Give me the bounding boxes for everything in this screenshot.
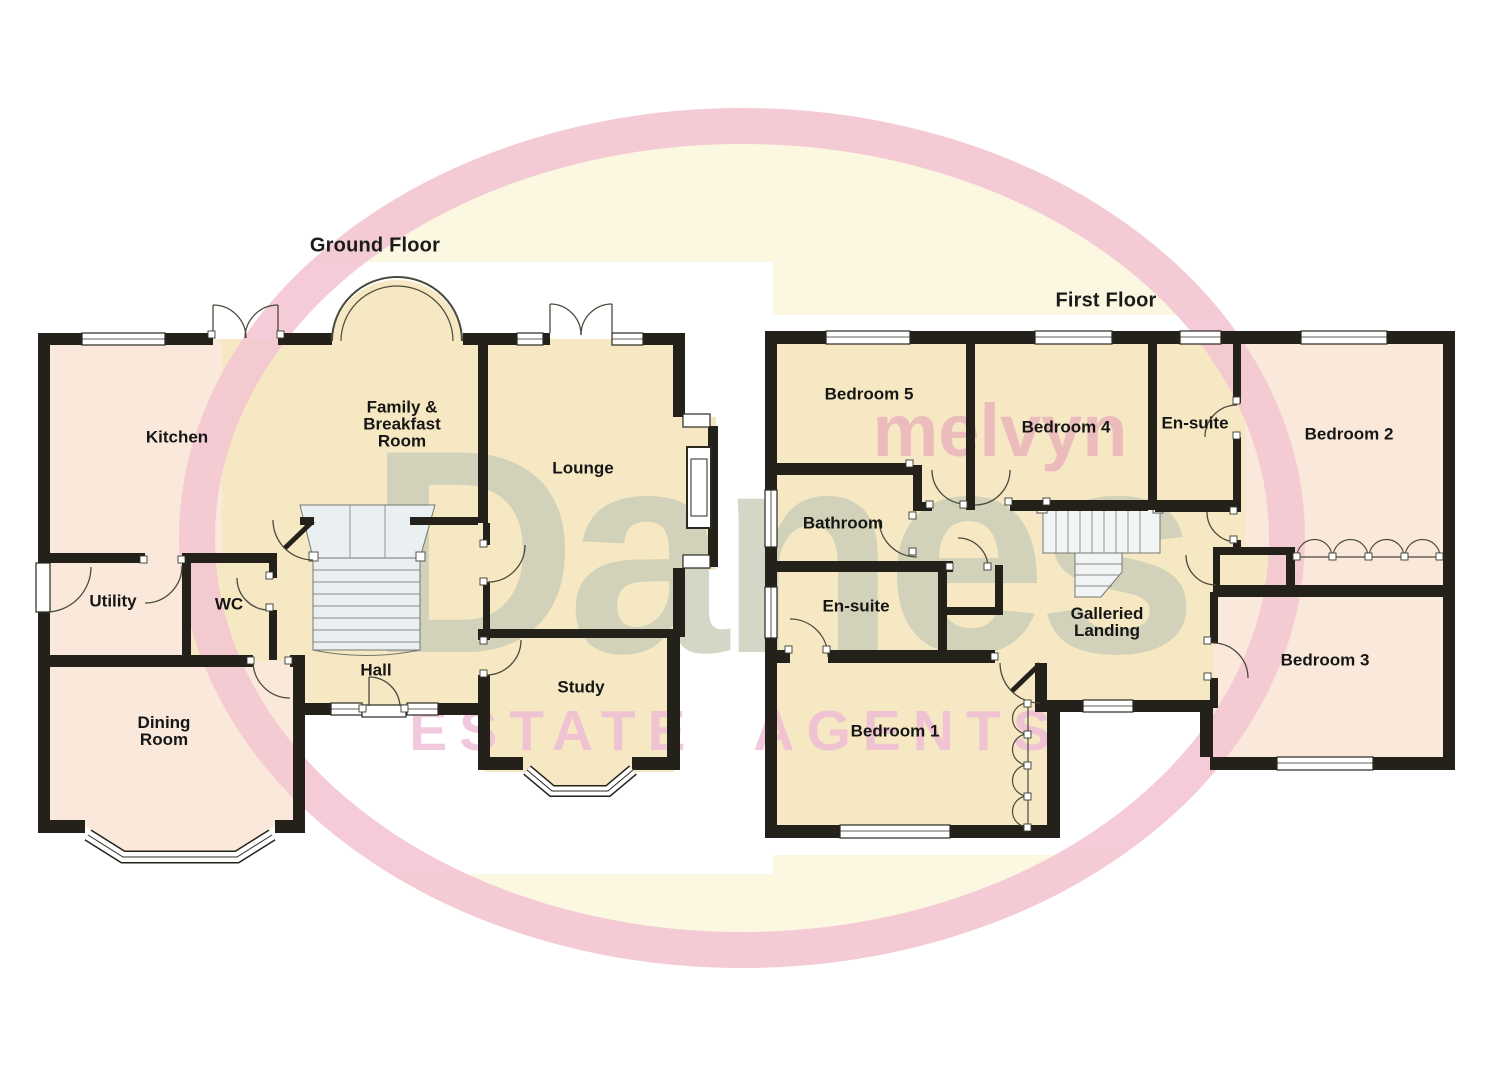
room-label-lounge: Lounge: [552, 460, 613, 477]
room-label-bathroom: Bathroom: [803, 515, 883, 532]
room-label-family-breakfast: Family & Breakfast Room: [363, 399, 441, 450]
ground-floor-title: Ground Floor: [310, 235, 440, 258]
room-label-ensuite-top: En-suite: [1161, 415, 1228, 432]
room-label-galleried-landing: Galleried Landing: [1071, 605, 1144, 639]
staircase-ground: [300, 505, 435, 656]
room-label-bedroom1: Bedroom 1: [851, 723, 940, 740]
room-label-study: Study: [557, 679, 604, 696]
first-floor-title: First Floor: [1055, 290, 1156, 313]
floorplan-drawing: Danes melvyn ESTATE AGENTS: [0, 0, 1485, 1080]
room-label-bedroom2: Bedroom 2: [1305, 426, 1394, 443]
room-label-kitchen: Kitchen: [146, 429, 208, 446]
room-label-bedroom5: Bedroom 5: [825, 386, 914, 403]
room-label-wc: WC: [215, 596, 243, 613]
room-label-bedroom4: Bedroom 4: [1022, 419, 1111, 436]
room-label-bedroom3: Bedroom 3: [1281, 652, 1370, 669]
room-label-ensuite: En-suite: [822, 598, 889, 615]
room-label-dining: Dining Room: [138, 714, 191, 748]
room-label-utility: Utility: [89, 593, 136, 610]
watermark-tagline: ESTATE AGENTS: [409, 699, 1063, 763]
room-label-hall: Hall: [360, 662, 391, 679]
fireplace: [687, 447, 711, 528]
floorplan-page: Danes melvyn ESTATE AGENTS: [0, 0, 1485, 1080]
